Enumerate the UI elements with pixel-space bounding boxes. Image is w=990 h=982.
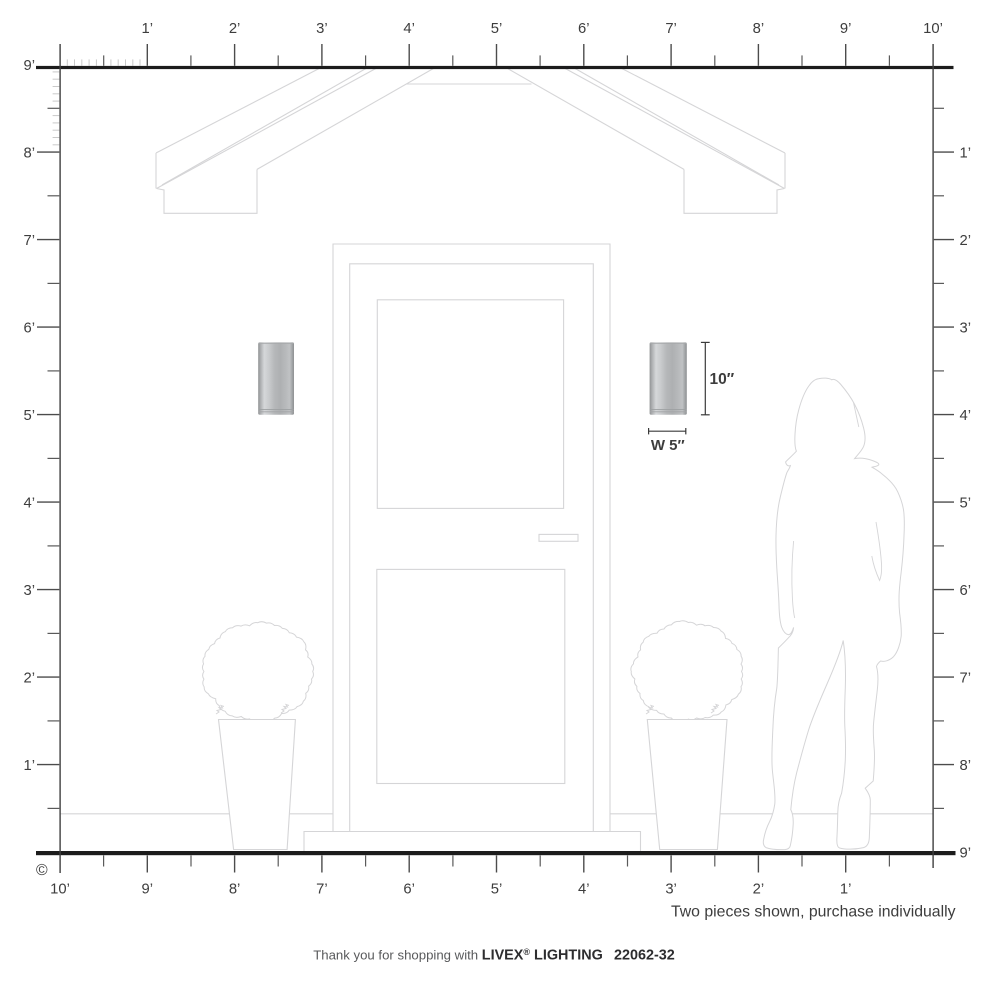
svg-text:5’: 5’ <box>491 21 503 37</box>
svg-text:8’: 8’ <box>23 146 35 162</box>
svg-text:4’: 4’ <box>403 21 415 37</box>
svg-text:Two pieces shown, purchase ind: Two pieces shown, purchase individually <box>671 904 956 921</box>
svg-text:©: © <box>36 862 48 879</box>
svg-text:3’: 3’ <box>316 21 328 37</box>
svg-text:7’: 7’ <box>960 671 972 687</box>
svg-text:5’: 5’ <box>960 496 972 512</box>
svg-text:9’: 9’ <box>142 882 154 898</box>
svg-text:3’: 3’ <box>665 882 677 898</box>
svg-text:6’: 6’ <box>960 583 972 599</box>
svg-text:1’: 1’ <box>960 146 972 162</box>
svg-text:7’: 7’ <box>316 882 328 898</box>
svg-text:7’: 7’ <box>665 21 677 37</box>
svg-text:2’: 2’ <box>960 233 972 249</box>
svg-text:8’: 8’ <box>960 758 972 774</box>
svg-text:Thank you for shopping with LI: Thank you for shopping with LIVEX® LIGHT… <box>313 947 675 964</box>
svg-text:7’: 7’ <box>23 233 35 249</box>
svg-text:W 5″: W 5″ <box>651 437 685 454</box>
svg-text:1’: 1’ <box>142 21 154 37</box>
svg-text:6’: 6’ <box>23 321 35 337</box>
svg-text:1’: 1’ <box>840 882 852 898</box>
svg-text:5’: 5’ <box>491 882 503 898</box>
svg-text:10’: 10’ <box>923 21 943 37</box>
svg-text:8’: 8’ <box>229 882 241 898</box>
svg-text:4’: 4’ <box>960 408 972 424</box>
svg-text:3’: 3’ <box>960 321 972 337</box>
svg-text:9’: 9’ <box>23 58 35 74</box>
svg-text:8’: 8’ <box>753 21 765 37</box>
svg-text:2’: 2’ <box>23 671 35 687</box>
svg-text:10’: 10’ <box>50 882 70 898</box>
svg-text:5’: 5’ <box>23 408 35 424</box>
svg-text:4’: 4’ <box>23 496 35 512</box>
svg-text:6’: 6’ <box>403 882 415 898</box>
svg-text:9’: 9’ <box>960 846 972 862</box>
svg-text:4’: 4’ <box>578 882 590 898</box>
svg-text:10″: 10″ <box>710 371 735 388</box>
svg-text:2’: 2’ <box>753 882 765 898</box>
svg-text:3’: 3’ <box>23 583 35 599</box>
svg-text:1’: 1’ <box>23 758 35 774</box>
svg-text:6’: 6’ <box>578 21 590 37</box>
svg-text:2’: 2’ <box>229 21 241 37</box>
svg-text:9’: 9’ <box>840 21 852 37</box>
